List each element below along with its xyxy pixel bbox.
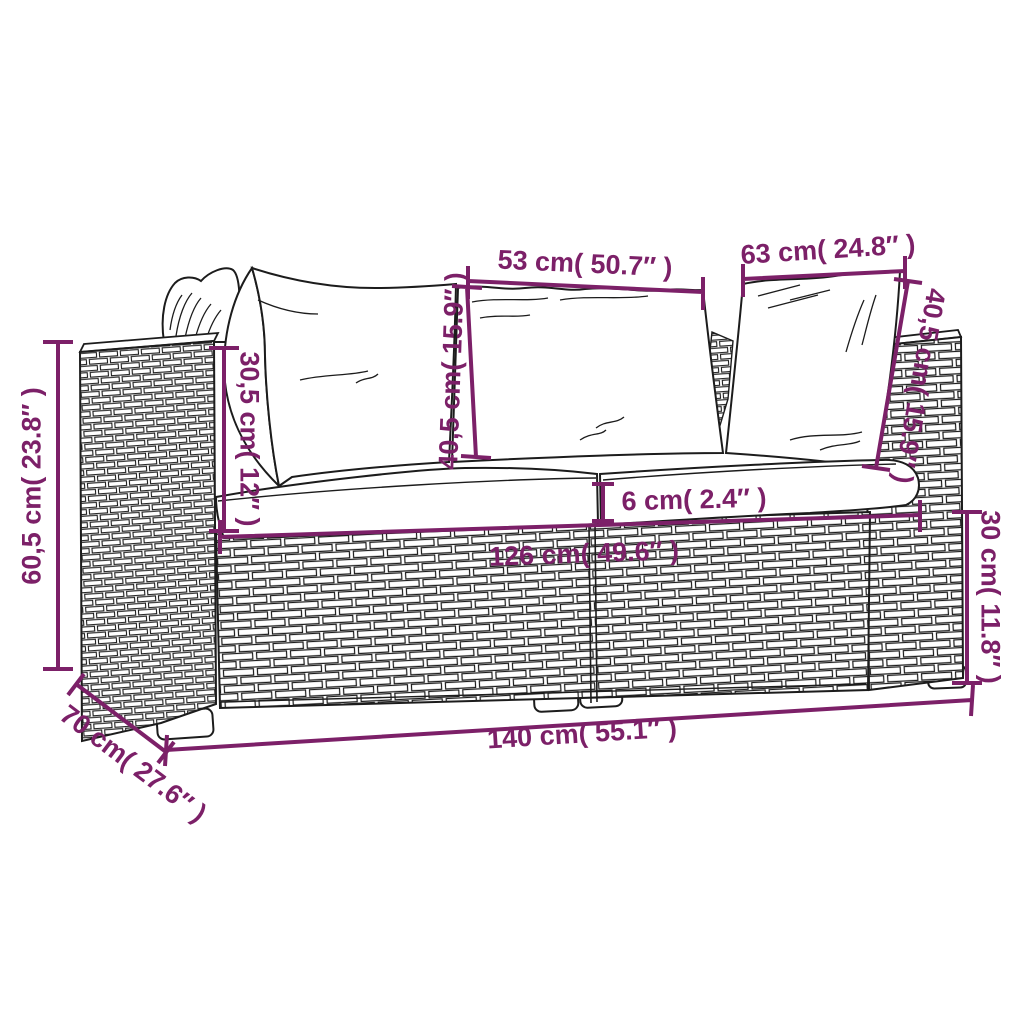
dim-label-back-cushion-height-middle: 40,5 cm( 15.9″ ) <box>435 272 469 470</box>
back-pillow-right <box>726 271 900 468</box>
dim-label-armrest-height-above-seat: 30,5 cm( 12″ ) <box>236 351 263 526</box>
dim-label-base-height: 30 cm( 11.8″ ) <box>977 510 1004 684</box>
dim-label-seat-cushion-thickness: 6 cm( 2.4″ ) <box>621 485 767 516</box>
sofa-line-art <box>0 0 1024 1024</box>
dim-label-inner-seat-width: 126 cm( 49.6″ ) <box>489 537 680 571</box>
dim-line-overall-height <box>43 342 73 669</box>
dim-label-overall-height: 60,5 cm( 23.8″ ) <box>19 387 46 585</box>
left-armrest <box>80 333 218 741</box>
back-pillow-middle <box>452 286 723 462</box>
product-dimension-diagram: 53 cm( 50.7″ ) 63 cm( 24.8″ ) 40,5 cm( 1… <box>0 0 1024 1024</box>
